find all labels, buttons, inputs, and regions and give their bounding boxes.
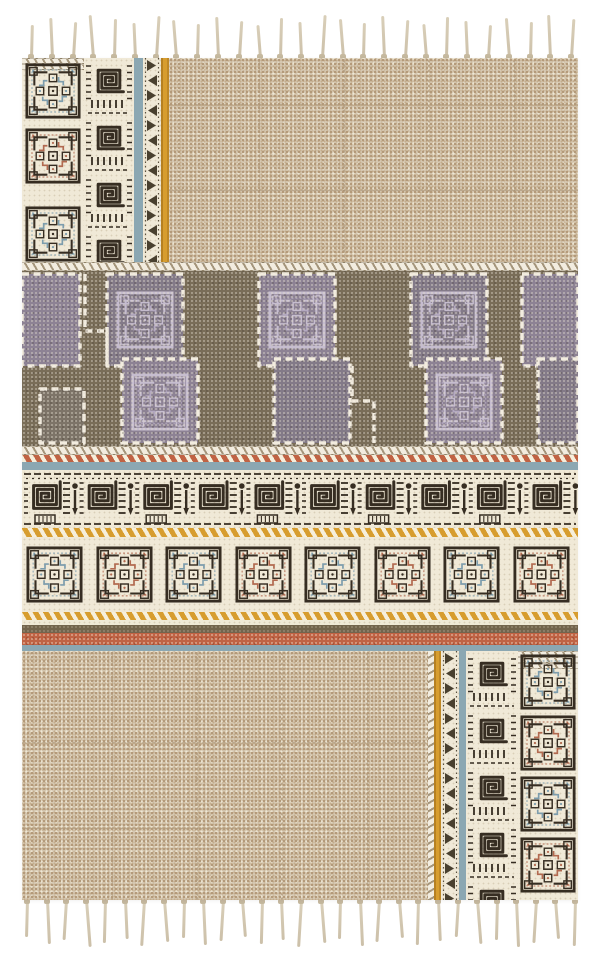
- fringe-tassel: [465, 21, 469, 58]
- fringe-tassel: [454, 900, 459, 937]
- fringe-tassel: [279, 18, 283, 58]
- maze-medallion-icon: [25, 128, 81, 184]
- fringe-tassel: [532, 900, 537, 943]
- fringe-tassel: [554, 900, 560, 939]
- maze-medallion-icon: [520, 837, 576, 893]
- blue-line-upper: [22, 462, 578, 470]
- fringe-tassel: [63, 900, 68, 940]
- left-medallion-column: [22, 58, 84, 262]
- fringe-tassel: [376, 900, 381, 942]
- maze-medallion-icon: [513, 546, 570, 603]
- spiral-border-motifs: [466, 651, 518, 900]
- border-maze-medallion: [520, 715, 576, 771]
- maze-medallion-icon: [520, 715, 576, 771]
- yellow-cord-line-upper: [22, 528, 578, 537]
- maze-medallion-icon: [520, 654, 576, 710]
- fringe-tassel: [241, 900, 246, 937]
- border-maze-medallion: [520, 776, 576, 832]
- bottom-beige-field: [22, 651, 428, 900]
- row-maze-medallion: [443, 546, 500, 603]
- stepped-patchwork-motifs: [22, 271, 578, 446]
- maze-medallion-icon: [26, 546, 83, 603]
- border-maze-medallion: [520, 837, 576, 893]
- right-blue-stripe: [459, 651, 466, 900]
- right-medallion-column: [518, 651, 578, 900]
- triangle-glyphs: [143, 58, 161, 262]
- fringe-tassel: [132, 23, 136, 58]
- fringe-tassel: [476, 900, 482, 944]
- fringe-tassel: [215, 17, 219, 58]
- fringe-tassel: [155, 16, 160, 58]
- rug: [22, 58, 578, 900]
- fringe-tassel: [362, 23, 365, 58]
- border-maze-medallion: [25, 128, 81, 184]
- border-maze-medallion: [25, 206, 81, 262]
- tribal-glyph-motifs: [22, 470, 578, 528]
- fringe-tassel: [398, 900, 403, 938]
- stitch-border-bottom: [22, 446, 578, 455]
- fringe-tassel: [113, 19, 117, 58]
- maze-medallion-icon: [520, 776, 576, 832]
- row-maze-medallion: [374, 546, 431, 603]
- tribal-glyph-border: [22, 470, 578, 528]
- maze-medallion-icon: [165, 546, 222, 603]
- top-beige-field: [169, 58, 578, 262]
- right-triangle-stripe: [441, 651, 459, 900]
- left-spiral-border: [84, 58, 134, 262]
- maze-medallion-icon: [304, 546, 361, 603]
- maze-medallion-icon: [96, 546, 153, 603]
- photo-canvas: [0, 0, 600, 960]
- maze-medallion-icon: [25, 206, 81, 262]
- row-maze-medallion: [26, 546, 83, 603]
- fringe-tassel: [505, 18, 511, 58]
- fringe-tassel: [547, 15, 551, 58]
- right-yellow-stripe: [434, 651, 441, 900]
- row-maze-medallion: [235, 546, 292, 603]
- right-spiral-border: [466, 651, 518, 900]
- fringe-tassel: [359, 900, 364, 946]
- fringe-tassel: [320, 900, 326, 943]
- border-maze-medallion: [520, 654, 576, 710]
- fringe-tassel: [124, 900, 128, 939]
- fringe-tassel: [260, 900, 264, 944]
- border-maze-medallion: [25, 63, 81, 119]
- fringe-tassel: [298, 22, 302, 58]
- fringe-tassel: [573, 900, 577, 946]
- fringe-tassel: [196, 24, 199, 58]
- fringe-tassel: [172, 20, 177, 58]
- spiral-border-motifs: [84, 58, 134, 262]
- fringe-tassel: [529, 22, 532, 58]
- maze-medallion-icon: [443, 546, 500, 603]
- fringe-tassel: [437, 900, 441, 941]
- fringe-tassel: [321, 15, 326, 58]
- maze-medallion-icon: [25, 63, 81, 119]
- fringe-tassel: [238, 21, 243, 58]
- fringe-tassel: [141, 900, 146, 946]
- fringe-tassel: [202, 900, 206, 945]
- fringe-tassel: [103, 900, 107, 943]
- fringe-tassel: [280, 900, 284, 940]
- fringe-tassel: [422, 24, 427, 58]
- fringe-tassel: [381, 16, 385, 58]
- left-triangle-stripe: [143, 58, 161, 262]
- fringe-tassel: [445, 17, 449, 58]
- row-maze-medallion: [304, 546, 361, 603]
- triangle-glyphs: [441, 651, 459, 900]
- stepped-patchwork-band: [22, 271, 578, 446]
- fringe-tassel: [297, 900, 302, 947]
- row-maze-medallion: [96, 546, 153, 603]
- fringe-tassel: [46, 900, 50, 944]
- fringe-tassel: [72, 22, 77, 58]
- fringe-tassel: [570, 19, 575, 58]
- row-maze-medallion: [165, 546, 222, 603]
- fringe-tassel: [416, 900, 420, 945]
- fringe-tassel: [515, 900, 520, 947]
- left-blue-stripe: [134, 58, 143, 262]
- rust-cord-line: [22, 455, 578, 462]
- fringe-tassel: [338, 900, 342, 939]
- left-yellow-stripe: [161, 58, 169, 262]
- fringe-tassel: [219, 900, 224, 941]
- fringe-tassel: [25, 900, 28, 937]
- rust-stripe: [22, 633, 578, 645]
- fringe-tassel: [85, 900, 91, 947]
- row-maze-medallion: [513, 546, 570, 603]
- fringe-tassel: [495, 900, 499, 940]
- medallion-row: [22, 537, 578, 612]
- maze-medallion-icon: [374, 546, 431, 603]
- maze-medallion-icon: [235, 546, 292, 603]
- stitch-border-top: [22, 262, 578, 271]
- fringe-tassel: [182, 900, 185, 938]
- yellow-cord-line-lower: [22, 612, 578, 620]
- fringe-tassel: [404, 20, 409, 58]
- brown-stripe: [22, 625, 578, 633]
- fringe-tassel: [89, 15, 95, 58]
- fringe-tassel: [49, 18, 53, 58]
- fringe-tassel: [338, 19, 344, 58]
- fringe-tassel: [163, 900, 169, 942]
